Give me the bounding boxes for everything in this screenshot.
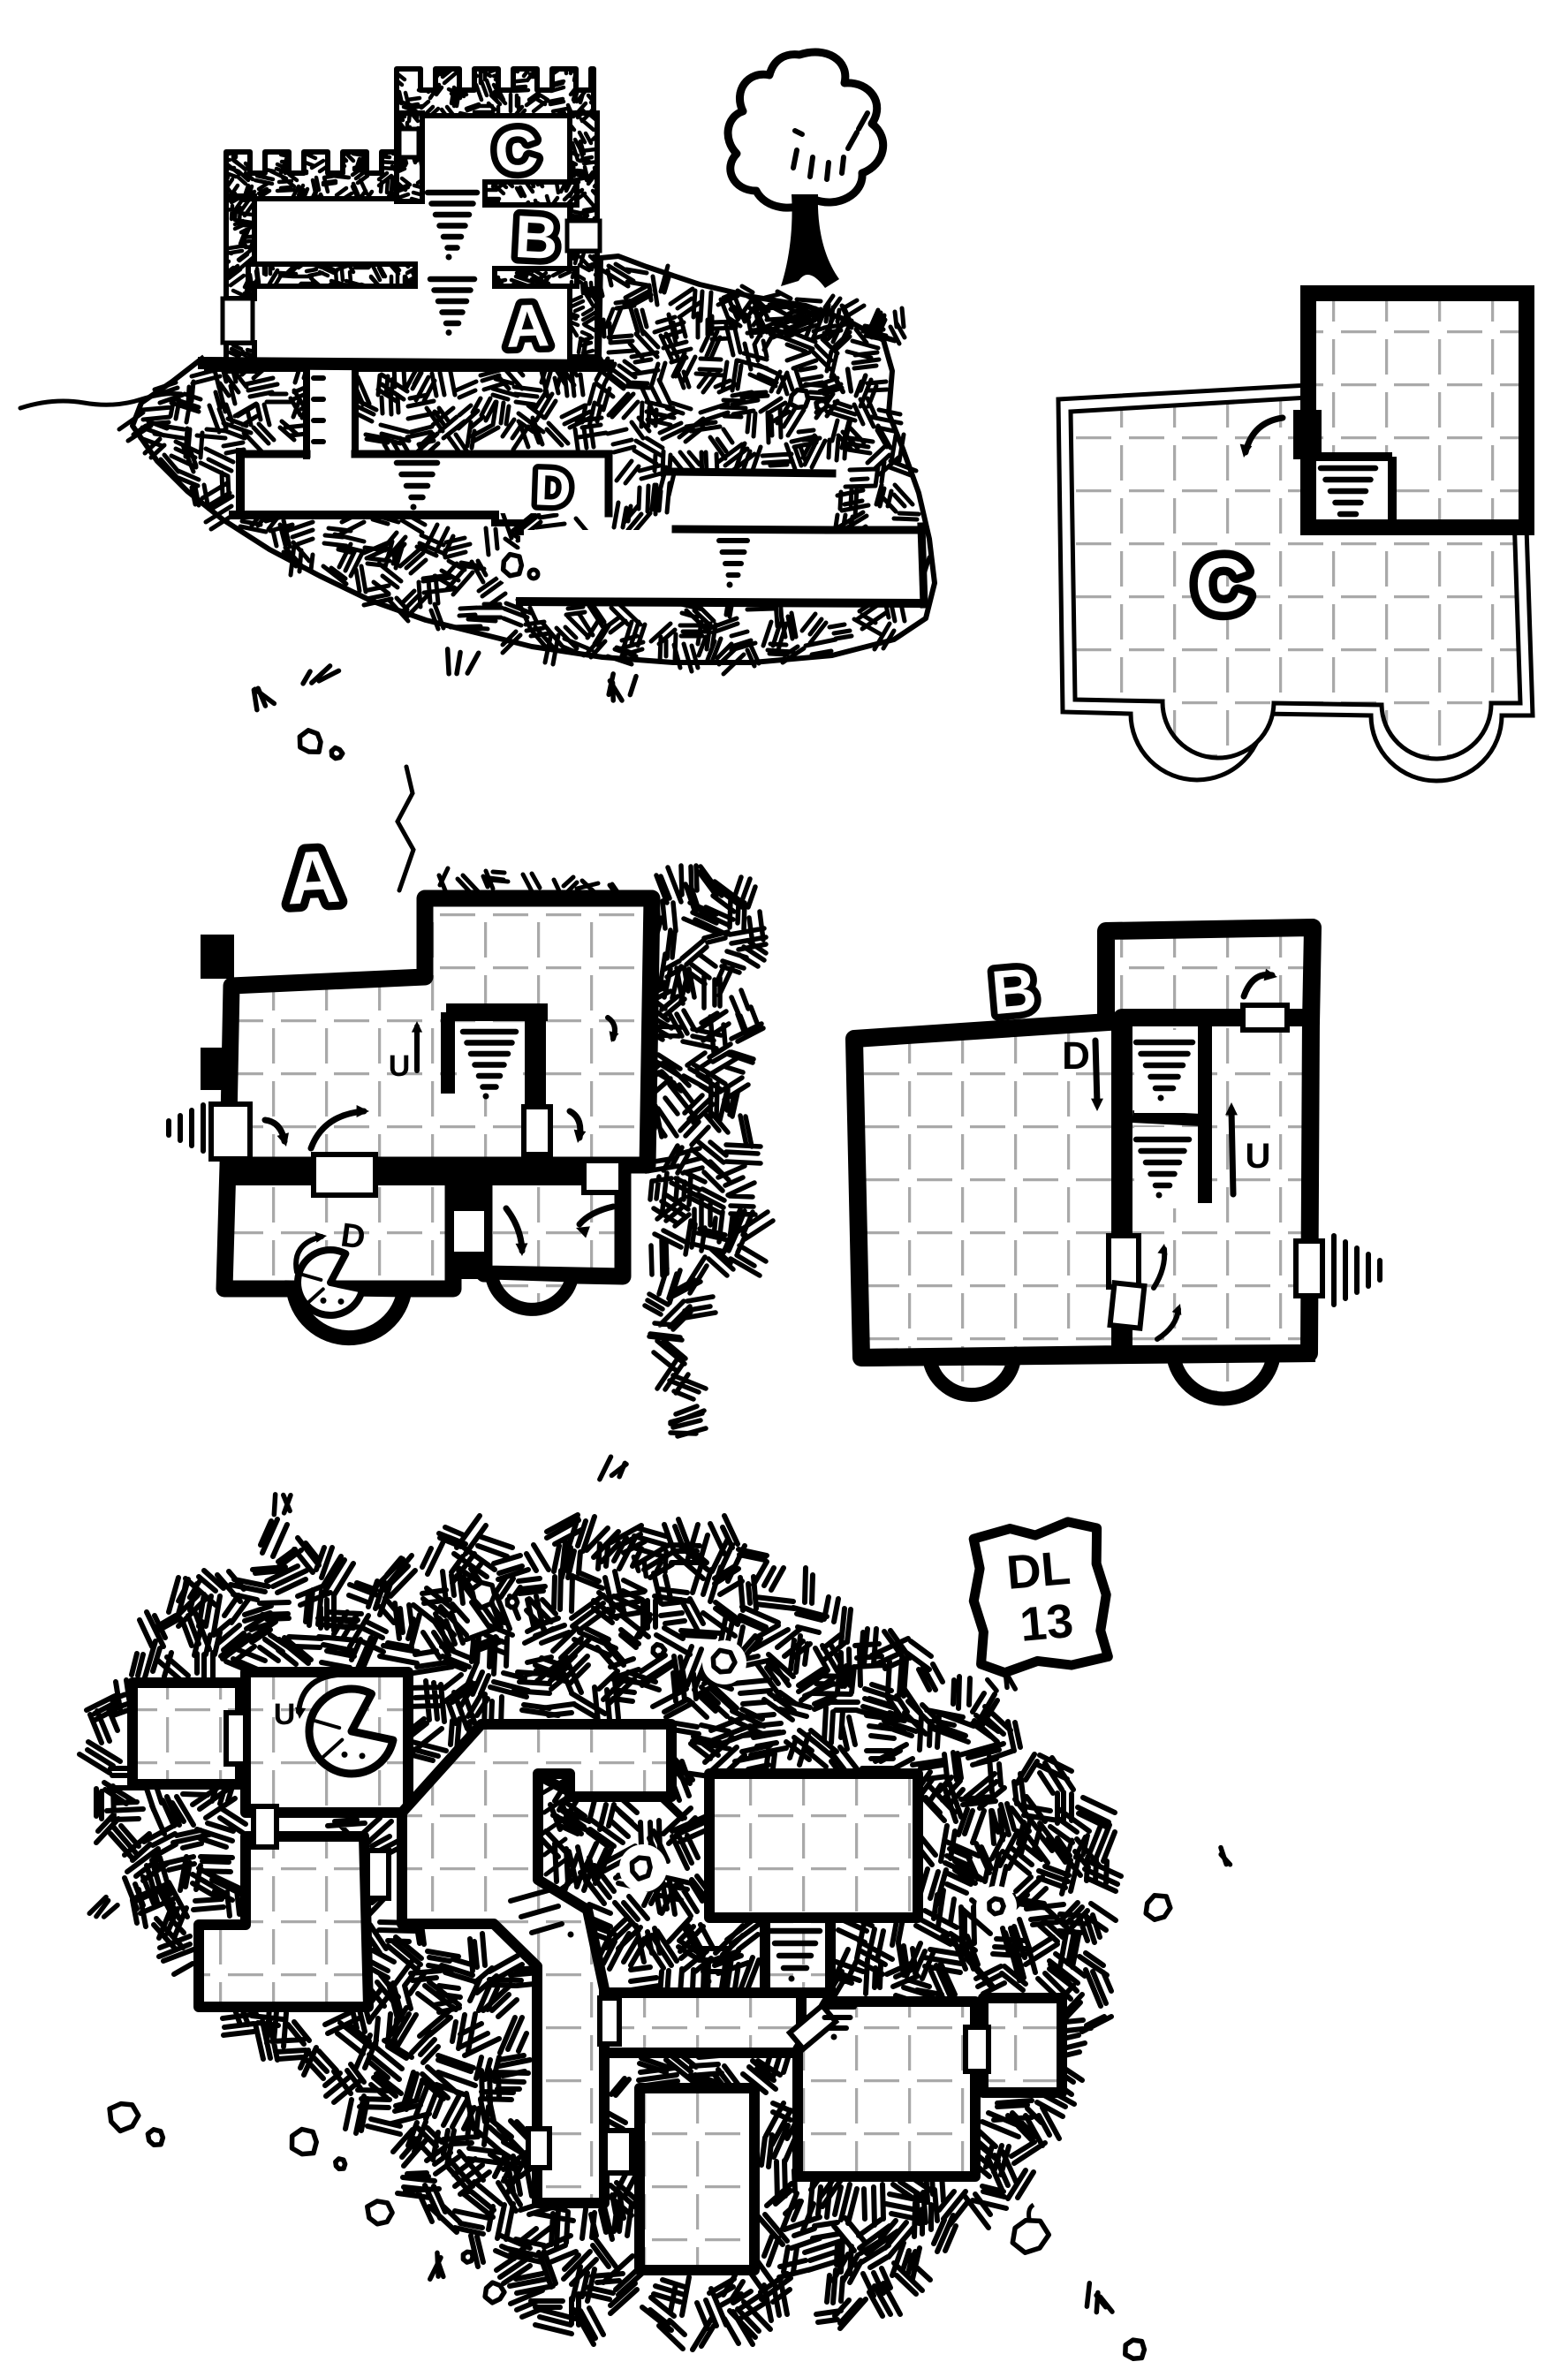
svg-text:C: C xyxy=(492,116,540,185)
svg-text:B: B xyxy=(989,955,1039,1027)
svg-text:U: U xyxy=(389,1049,411,1083)
svg-text:U: U xyxy=(274,1698,296,1731)
svg-text:DL: DL xyxy=(1004,1541,1072,1600)
svg-text:B: B xyxy=(513,203,560,272)
svg-text:C: C xyxy=(1193,541,1252,629)
svg-text:13: 13 xyxy=(1018,1594,1075,1652)
svg-text:U: U xyxy=(1246,1137,1271,1176)
svg-text:D: D xyxy=(1062,1034,1090,1078)
svg-text:A: A xyxy=(284,835,343,920)
svg-text:D: D xyxy=(338,1216,367,1256)
svg-text:A: A xyxy=(504,291,550,360)
svg-text:D: D xyxy=(534,458,572,517)
